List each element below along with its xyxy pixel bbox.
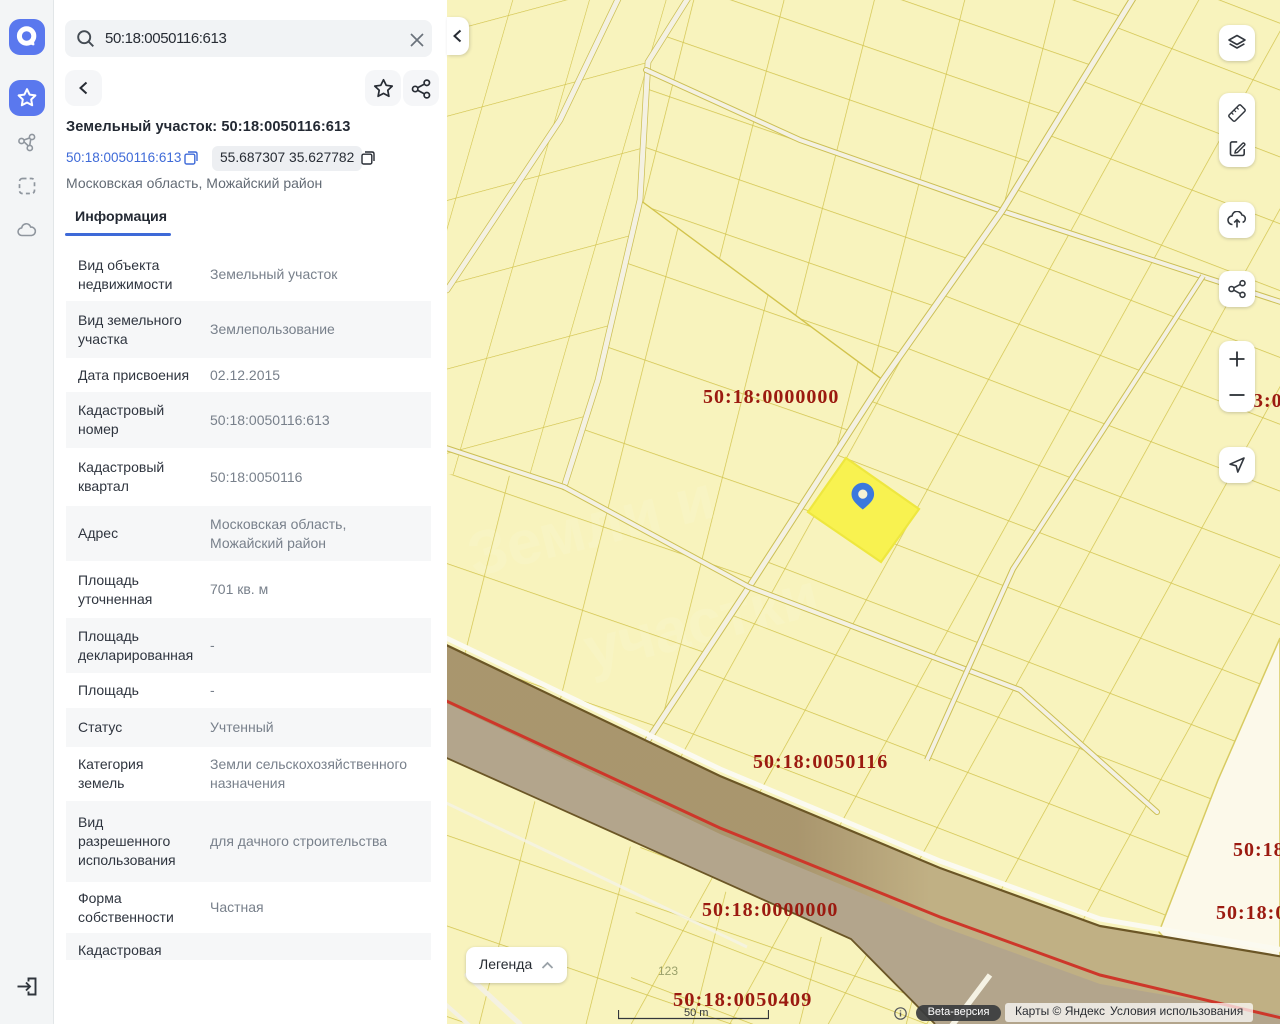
svg-text:50:18:0: 50:18:0 (1216, 902, 1280, 924)
svg-text:50:18: 50:18 (1233, 839, 1280, 861)
svg-text:50:18:0050116: 50:18:0050116 (753, 751, 888, 773)
svg-text:123: 123 (658, 964, 678, 978)
svg-text:50:18:0000000: 50:18:0000000 (702, 899, 838, 921)
svg-text:50 m: 50 m (684, 1007, 708, 1019)
svg-text:3:0: 3:0 (1253, 390, 1280, 412)
svg-text:50:18:0000000: 50:18:0000000 (703, 386, 839, 408)
